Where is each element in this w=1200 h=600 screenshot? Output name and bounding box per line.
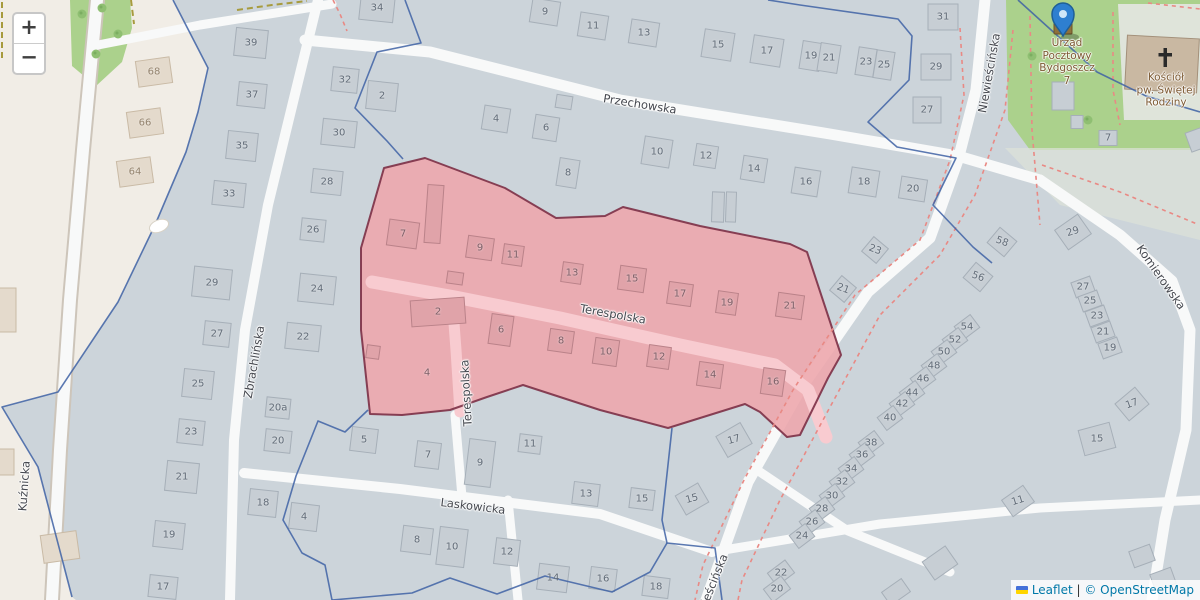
building [701, 29, 735, 61]
building [177, 419, 205, 446]
building [126, 108, 163, 138]
building [237, 82, 267, 109]
building [265, 397, 291, 419]
building [212, 180, 246, 207]
attribution-bar: Leaflet | © OpenStreetMap [1011, 580, 1200, 600]
building [740, 155, 767, 182]
openstreetmap-link[interactable]: © OpenStreetMap [1084, 583, 1194, 597]
building [192, 266, 233, 300]
building [518, 434, 542, 455]
building [775, 292, 804, 319]
building [0, 449, 14, 475]
building [350, 427, 379, 454]
zoom-in-button[interactable]: + [14, 14, 44, 44]
building [577, 12, 608, 40]
building [366, 345, 381, 360]
building [331, 67, 359, 94]
building [817, 43, 841, 74]
building [561, 262, 584, 285]
building [401, 525, 434, 554]
building [502, 244, 525, 267]
building [647, 345, 672, 370]
building [248, 489, 279, 518]
building [1071, 116, 1083, 129]
building [760, 368, 785, 397]
building [116, 157, 153, 187]
building [555, 94, 573, 109]
building [642, 575, 670, 598]
building [693, 143, 718, 168]
building [321, 118, 358, 147]
building [464, 439, 495, 488]
building [226, 131, 259, 162]
tree-icon [1086, 118, 1089, 121]
building [494, 538, 521, 567]
tree-icon [1030, 54, 1033, 57]
building [182, 369, 215, 400]
building [311, 168, 343, 195]
ukraine-flag-icon [1016, 586, 1028, 594]
building [203, 321, 231, 348]
building [711, 192, 724, 222]
building [300, 218, 326, 242]
tree-icon [80, 12, 83, 15]
building [359, 0, 396, 23]
tree-icon [94, 52, 97, 55]
building [148, 575, 178, 600]
building [592, 337, 619, 366]
building [898, 176, 927, 202]
building [424, 185, 444, 244]
building [298, 273, 337, 305]
building [629, 488, 655, 511]
map-canvas[interactable]: 6866643937353329272523211917343230282624… [0, 0, 1200, 600]
building [289, 502, 320, 531]
tree-icon [116, 32, 119, 35]
zoom-control: + − [12, 12, 46, 75]
building [572, 481, 600, 506]
attribution-separator: | [1073, 583, 1085, 597]
building [641, 136, 673, 168]
building [488, 314, 514, 347]
building [750, 35, 784, 67]
map-marker-icon [1059, 10, 1067, 18]
building [628, 19, 659, 47]
building [532, 114, 559, 141]
zoom-out-button[interactable]: − [14, 44, 44, 73]
leaflet-link[interactable]: Leaflet [1032, 583, 1073, 597]
building [40, 531, 80, 564]
church-cross-icon [1164, 48, 1168, 67]
building [1099, 131, 1117, 146]
building [0, 288, 16, 332]
building [928, 4, 958, 30]
building [873, 50, 895, 80]
building [696, 361, 723, 388]
church-cross-icon [1159, 53, 1173, 57]
building [466, 235, 495, 260]
building [1125, 35, 1200, 93]
tree-icon [100, 6, 103, 9]
map-graphics [0, 0, 1200, 600]
building [366, 81, 399, 112]
building [913, 97, 941, 123]
building [556, 158, 580, 189]
building [415, 441, 442, 470]
building [153, 521, 186, 550]
building [386, 219, 419, 249]
building [446, 271, 464, 285]
building [716, 291, 739, 316]
building [410, 297, 466, 327]
building [165, 460, 200, 493]
building [234, 27, 269, 58]
building [436, 526, 468, 567]
building [848, 167, 880, 197]
building [135, 57, 172, 87]
building [667, 281, 694, 306]
building [921, 54, 951, 80]
building [548, 328, 575, 353]
building [791, 167, 821, 197]
building [529, 0, 560, 26]
building [285, 322, 322, 351]
building [1052, 82, 1074, 110]
building [264, 429, 292, 454]
building [725, 192, 736, 222]
building [481, 105, 510, 133]
building [617, 265, 646, 292]
